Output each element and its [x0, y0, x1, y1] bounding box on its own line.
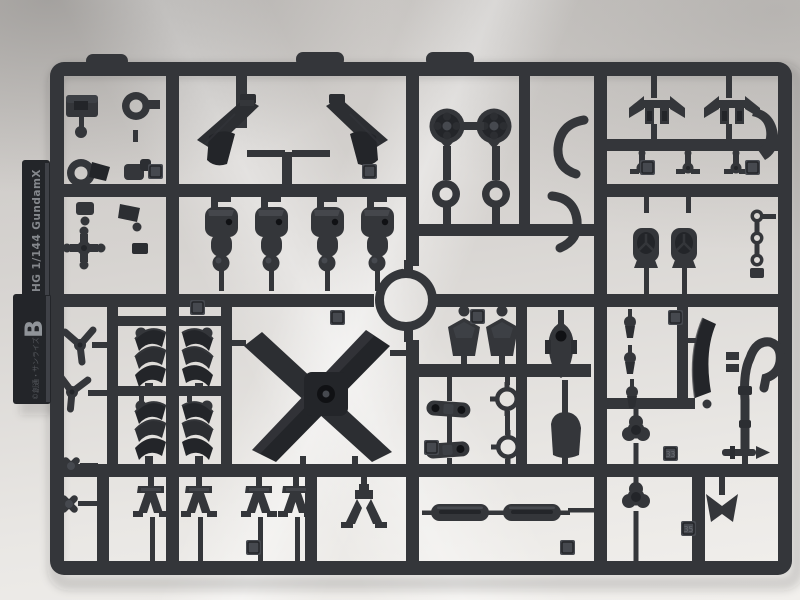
- part-armor-shell: [135, 328, 166, 392]
- part-box: [66, 95, 98, 138]
- part-pentagon-plate: [448, 318, 480, 365]
- part-trefoil-socket: [622, 415, 650, 441]
- part-u-bracket: [241, 476, 277, 517]
- photo-backdrop: 33 35 HG 1/144 GundamX B ©創通・サンライズ: [0, 0, 800, 600]
- tag-copyright-text: ©創通・サンライズ: [31, 337, 40, 400]
- part-armor-shell: [135, 401, 166, 465]
- part-capsule: [422, 504, 498, 521]
- part-donut-ring: [482, 180, 510, 208]
- part-bulb: [624, 309, 636, 338]
- part-hub-joint: [430, 109, 465, 150]
- blank-plates: [148, 160, 760, 555]
- part-lump: [124, 159, 151, 180]
- part-cross-joint: [63, 227, 106, 270]
- part-small-joint: [676, 150, 700, 175]
- part-wing-binder: [232, 330, 406, 466]
- sprue-photo: 33 35 HG 1/144 GundamX B ©創通・サンライズ: [0, 0, 800, 600]
- part-number-plate: 35: [681, 521, 696, 536]
- part-small-joint: [76, 202, 94, 226]
- part-small-wedge: [118, 204, 142, 232]
- runner-id-tag: HG 1/144 GundamX B ©創通・サンライズ: [13, 160, 51, 404]
- part-armor-shell: [182, 328, 213, 392]
- part-y-joint: [65, 330, 93, 362]
- part-u-bracket: [181, 476, 217, 517]
- part-number-label: 35: [684, 525, 694, 534]
- part-trefoil-socket: [622, 482, 650, 508]
- part-arm-segment: [255, 195, 288, 291]
- part-small-block: [132, 243, 148, 254]
- part-stand: [341, 477, 387, 528]
- part-arm-segment: [205, 195, 238, 291]
- part-u-bracket: [133, 476, 169, 517]
- part-arm-segment: [311, 195, 344, 291]
- tag-series-text: HG 1/144 GundamX: [31, 169, 43, 292]
- part-link-bar: [426, 400, 471, 418]
- part-small-joint: [724, 150, 748, 175]
- tag-runner-letter: B: [20, 320, 48, 338]
- part-foot: [551, 380, 581, 466]
- part-crescent: [552, 196, 577, 248]
- part-donut-ring: [432, 180, 460, 208]
- part-crescent: [558, 120, 584, 174]
- part-center-ring: [375, 269, 437, 331]
- part-wing-right: [326, 94, 388, 165]
- part-h-bracket: [629, 96, 685, 124]
- part-armor-shell: [182, 401, 213, 465]
- part-claw: [752, 108, 778, 160]
- part-h-bracket: [704, 96, 760, 124]
- part-ring-tab: [122, 92, 160, 142]
- part-number-label: 33: [666, 450, 676, 459]
- part-ring-chain: [750, 210, 776, 279]
- part-number-plate: 33: [663, 446, 678, 461]
- part-bulb: [624, 345, 636, 374]
- part-capsule: [494, 504, 570, 521]
- part-chevron: [706, 477, 738, 522]
- part-pentagon-plate: [486, 318, 518, 365]
- part-axe-blade: [686, 318, 716, 409]
